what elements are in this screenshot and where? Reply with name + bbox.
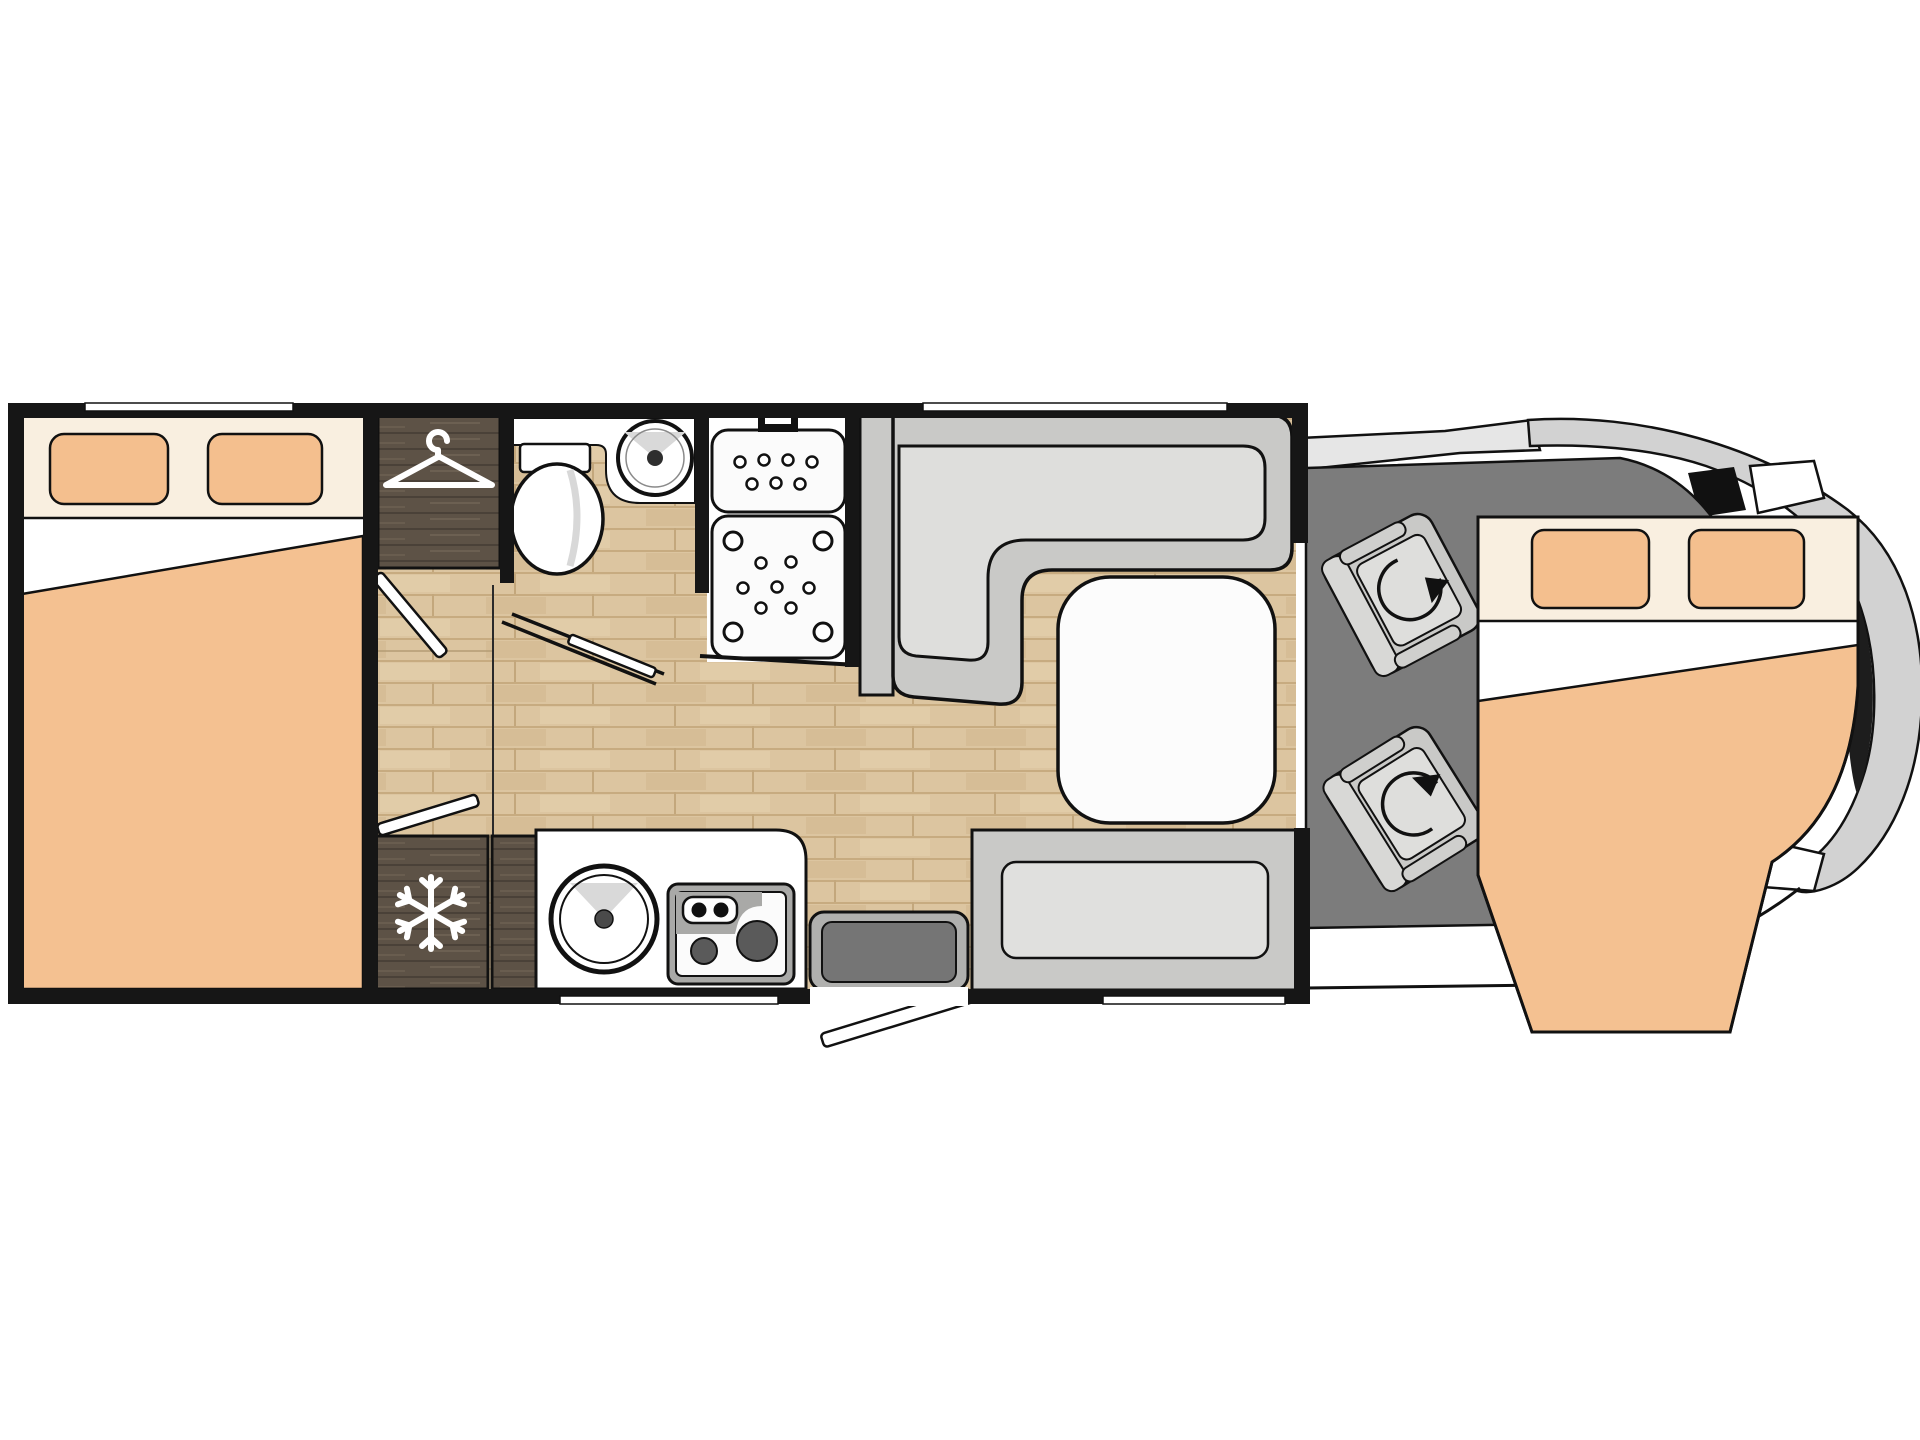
kitchen-sink [551, 866, 657, 972]
wall-bedroom-partition [363, 410, 378, 989]
kitchen [536, 830, 806, 989]
front-bed-pillow-left [1532, 530, 1649, 608]
wall-front-right-lower [1294, 828, 1310, 1004]
stove [668, 884, 794, 984]
motorhome-floorplan [0, 0, 1920, 1440]
wall-shower-right [845, 403, 859, 667]
living-module [8, 403, 1310, 1047]
window-dinette [923, 403, 1227, 411]
wall-front-right-upper [1292, 403, 1308, 543]
stove-knob-panel [683, 897, 737, 923]
shower [700, 403, 857, 665]
entry-door-opening [810, 987, 968, 1006]
dinette-sideboard [860, 415, 893, 695]
bench-seat [972, 830, 1298, 990]
wall-washroom-left [500, 403, 514, 583]
entry-step [810, 912, 968, 990]
dinette-table [1058, 577, 1275, 823]
wall-washroom-shower [695, 403, 709, 593]
window-rear-bed [85, 403, 293, 411]
front-bed-pillow-right [1689, 530, 1804, 608]
shower-tray-upper [712, 430, 845, 512]
window-bench [1103, 996, 1285, 1004]
stove-burner-large [737, 921, 777, 961]
toilet-bowl [511, 464, 603, 574]
wash-basin [618, 421, 692, 495]
rear-bed-pillow-right [208, 434, 322, 504]
wardrobe [378, 410, 500, 568]
rear-bed-blanket [22, 536, 363, 989]
stove-burner-small [691, 938, 717, 964]
rear-bedroom [22, 418, 363, 989]
floorplan-page [0, 0, 1920, 1440]
tall-cabinet [492, 836, 536, 989]
front-bed [1478, 517, 1858, 1032]
window-kitchen [560, 996, 778, 1004]
rear-bed-pillow-left [50, 434, 168, 504]
wall-rear [8, 403, 24, 1004]
refrigerator [374, 836, 488, 989]
